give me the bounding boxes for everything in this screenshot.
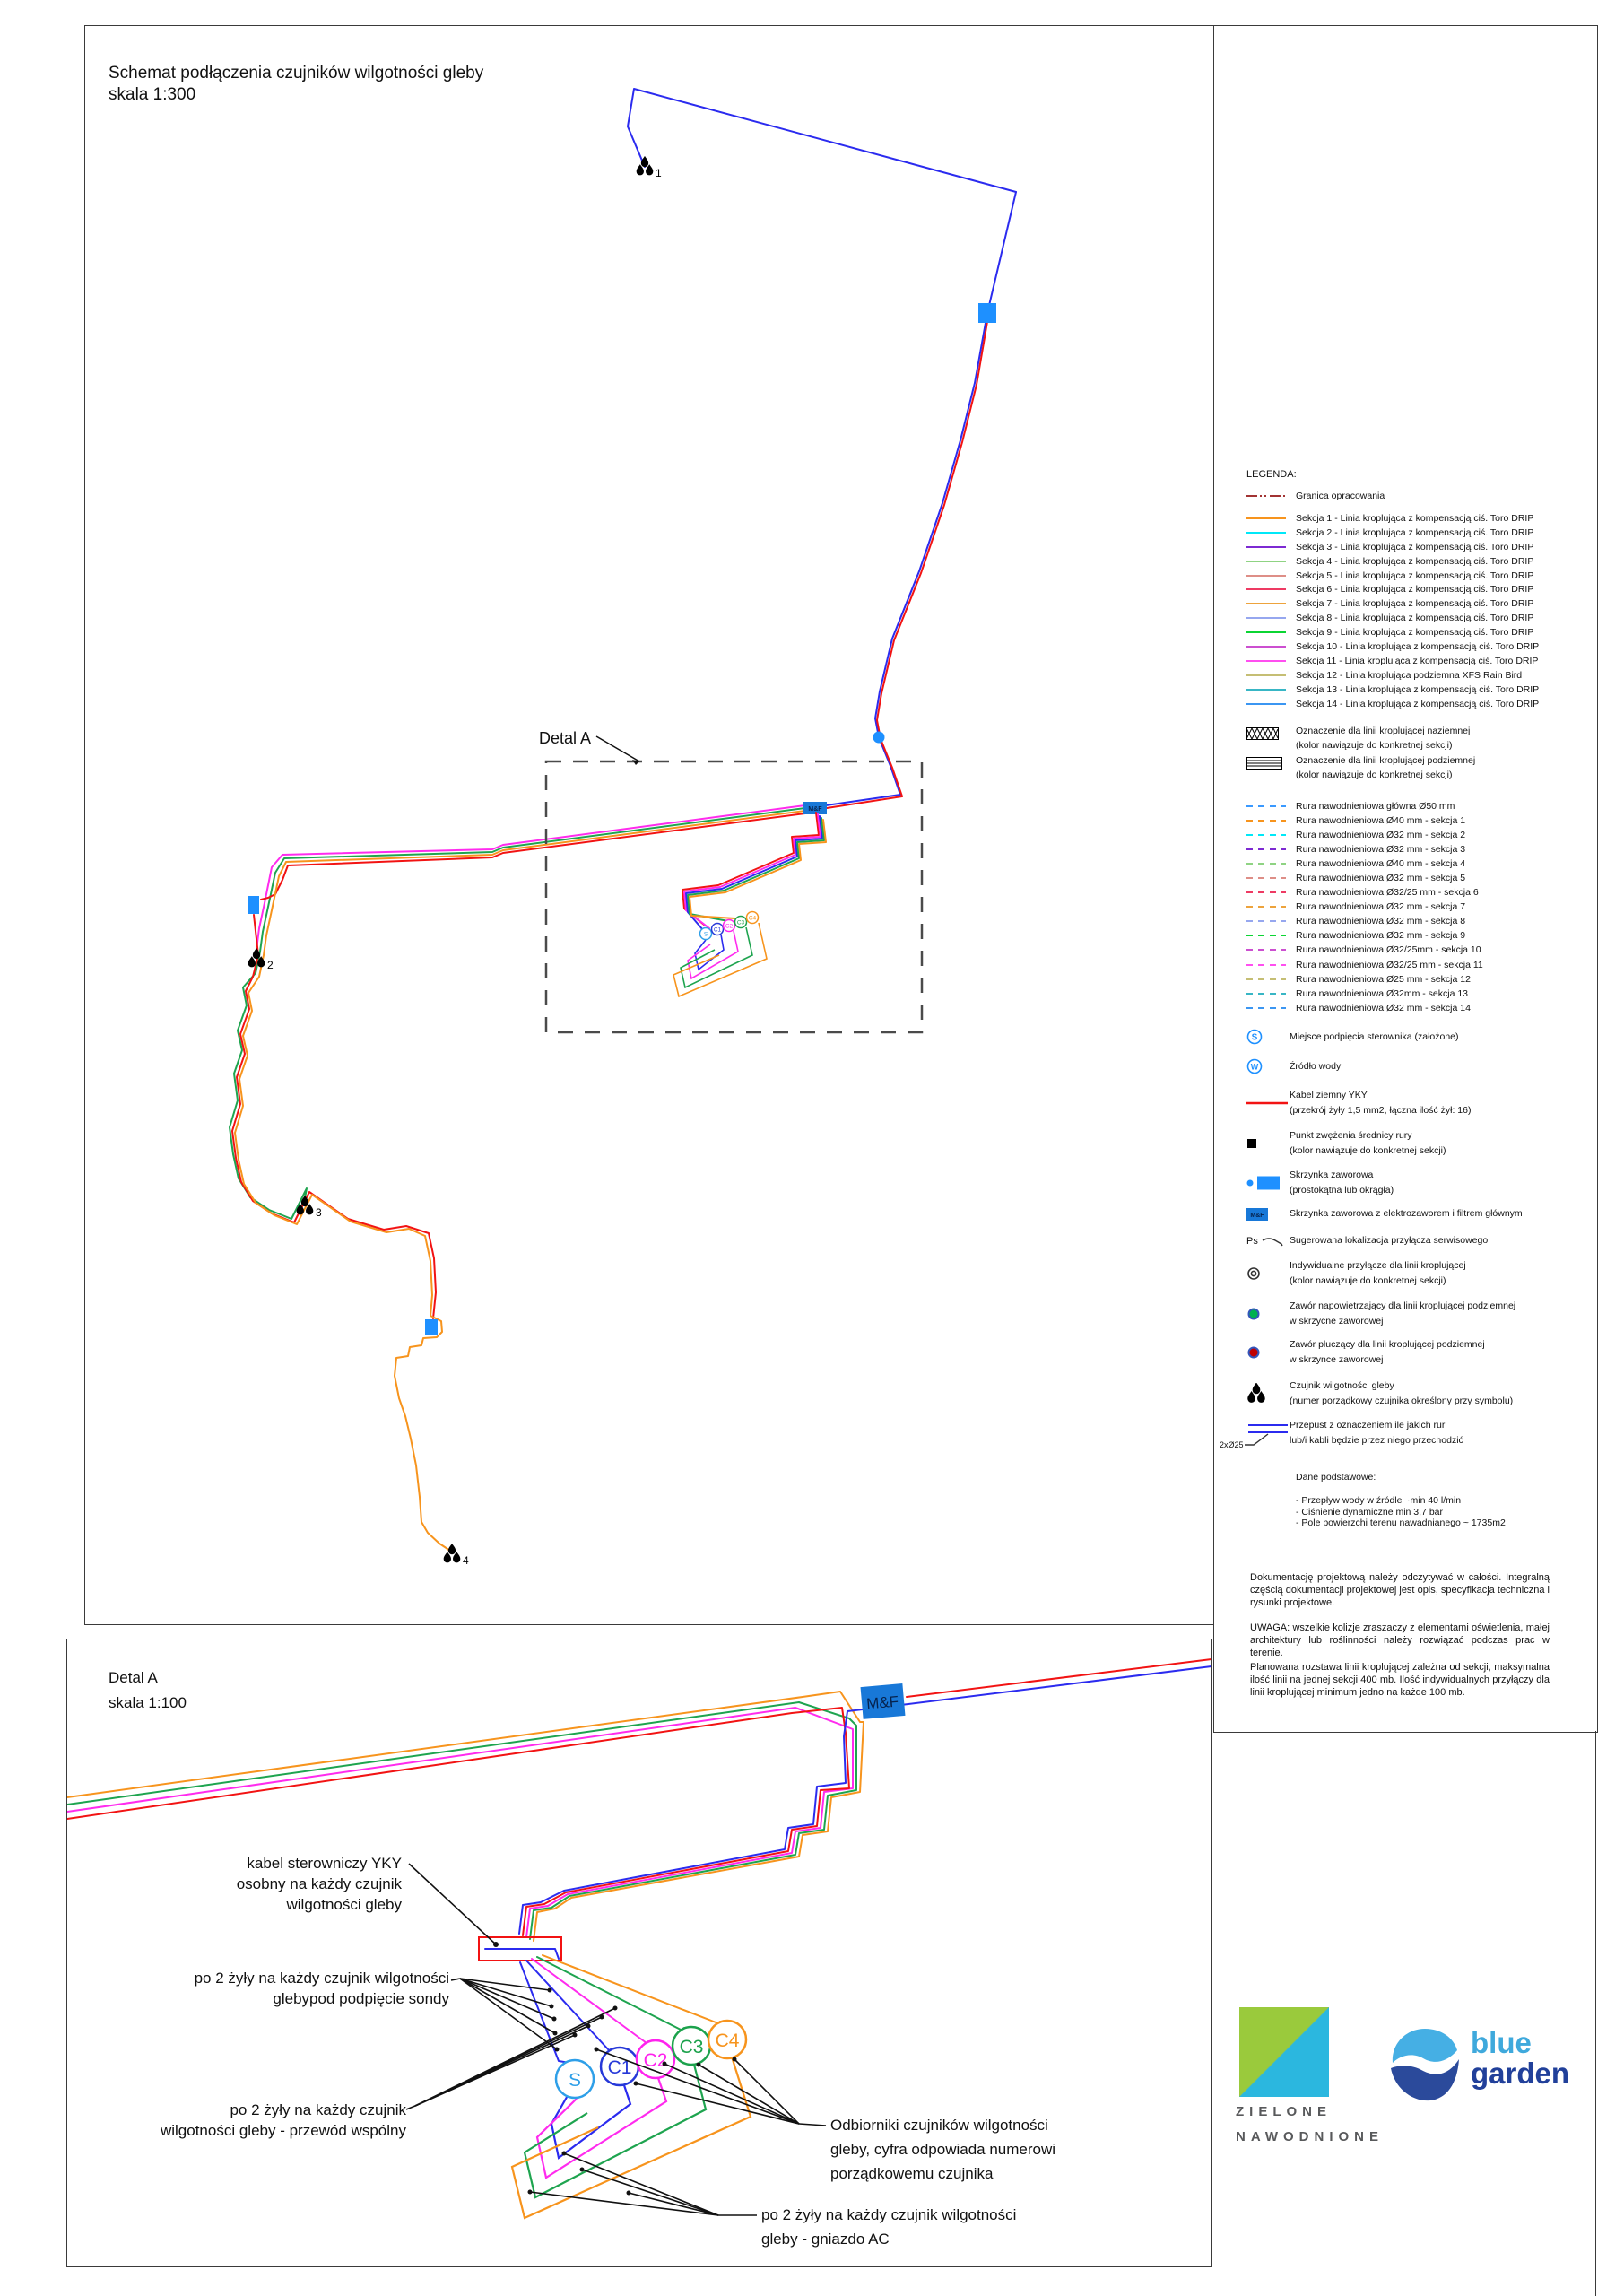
label-odbiorniki-2: gleby, cyfra odpowiada numerowi <box>830 2141 1055 2158</box>
detail-pipe-green <box>67 1702 856 1939</box>
legend-row-zawor-nap: Zawór napowietrzający dla linii kroplują… <box>1246 1299 1593 1329</box>
flush-valve-icon <box>1246 1345 1261 1360</box>
water-source-icon: W <box>1246 1058 1263 1074</box>
annotation-leaders <box>406 1864 826 2215</box>
legend-title: LEGENDA: <box>1246 469 1297 480</box>
legend-row-sterownik: S Miejsce podpięcia sterownika (założone… <box>1246 1029 1593 1045</box>
label-kabel-2: osobny na każdy czujnik <box>237 1875 403 1892</box>
legend-sekcja-row: Sekcja 14 - Linia kroplująca z kompensac… <box>1246 697 1539 711</box>
controller-icon: S <box>1246 1029 1263 1045</box>
legend-sekcja-row: Sekcja 5 - Linia kroplująca z kompensacj… <box>1246 569 1539 583</box>
czujnik-label-2: (numer porządkowy czujnika określony prz… <box>1290 1394 1513 1409</box>
receiver-circles-small: S C1 C2 C3 C4 <box>700 912 759 940</box>
service-connection-icon <box>1262 1236 1285 1247</box>
main-drawing: Schemat podłączenia czujników wilgotnośc… <box>85 26 1214 1624</box>
detail-cable-red-east <box>907 1659 1211 1697</box>
soil-moisture-sensor-icon <box>637 156 654 176</box>
valve-box-2 <box>248 896 259 914</box>
svg-text:M&F: M&F <box>865 1692 899 1712</box>
valve-box-mf-icon: M&F <box>1246 1208 1268 1221</box>
main-scale: skala 1:300 <box>109 85 195 104</box>
legend-sekcje-list: Sekcja 1 - Linia kroplująca z kompensacj… <box>1246 511 1539 710</box>
svg-text:C4: C4 <box>749 916 757 922</box>
legend-rura-row: Rura nawodnieniowa Ø32 mm - sekcja 8 <box>1246 914 1483 928</box>
legend-row-czujnik: Czujnik wilgotności gleby (numer porządk… <box>1246 1378 1593 1409</box>
przylacze-label-1: Indywidualne przyłącze dla linii kropluj… <box>1290 1258 1466 1274</box>
detail-pipe-orange <box>67 1692 864 1941</box>
punkt-label-2: (kolor nawiązuje do konkretnej sekcji) <box>1290 1144 1446 1159</box>
label-sonda-2: glebypod podpięcie sondy <box>273 1990 449 2007</box>
svg-text:S: S <box>1252 1033 1258 1043</box>
legend-rura-row: Rura nawodnieniowa Ø32 mm - sekcja 2 <box>1246 828 1483 842</box>
granica-label: Granica opracowania <box>1296 491 1385 501</box>
dane-item: - Pole powierzchi terenu nawadnianego ~ … <box>1296 1518 1506 1529</box>
sekcja-label: Sekcja 5 - Linia kroplująca z kompensacj… <box>1296 570 1533 581</box>
air-valve-icon <box>1246 1307 1261 1321</box>
zielone-logo-text-1: ZIELONE <box>1236 2104 1332 2119</box>
label-wspolny-2: wilgotności gleby - przewód wspólny <box>160 2122 407 2139</box>
legend-row-skrzynka: Skrzynka zaworowa (prostokątna lub okrąg… <box>1246 1168 1593 1198</box>
sekcja-line-swatch <box>1246 617 1286 619</box>
oznaczenie-2-line1: Oznaczenie dla linii kroplującej podziem… <box>1296 755 1475 766</box>
label-kabel-1: kabel sterowniczy YKY <box>247 1855 402 1872</box>
zielone-nawodnione-logo <box>1239 2007 1329 2097</box>
legend-rura-row: Rura nawodnieniowa Ø32 mm - sekcja 3 <box>1246 842 1483 857</box>
surface-dripline-hatch-icon <box>1246 727 1279 740</box>
label-sonda-1: po 2 żyły na każdy czujnik wilgotności <box>195 1970 449 1987</box>
svg-text:W: W <box>1251 1063 1259 1072</box>
svg-text:S: S <box>569 2070 581 2091</box>
pipe-green <box>230 808 805 1219</box>
punkt-label-1: Punkt zwężenia średnicy rury <box>1290 1128 1446 1144</box>
legend-row-kabel: Kabel ziemny YKY (przekrój żyły 1,5 mm2,… <box>1246 1088 1593 1118</box>
sekcja-line-swatch <box>1246 603 1286 604</box>
legend-sekcja-row: Sekcja 11 - Linia kroplująca z kompensac… <box>1246 654 1539 668</box>
sekcja-line-swatch <box>1246 546 1286 548</box>
rura-label: Rura nawodnieniowa Ø32 mm - sekcja 2 <box>1296 830 1465 840</box>
cable-red-south <box>232 915 436 1318</box>
woda-label: Źródło wody <box>1290 1059 1341 1074</box>
sekcja-label: Sekcja 13 - Linia kroplująca z kompensac… <box>1296 684 1539 695</box>
svg-text:C3: C3 <box>737 920 745 926</box>
rura-label: Rura nawodnieniowa Ø32/25 mm - sekcja 11 <box>1296 960 1483 970</box>
receiver-circles: S C1 C2 C3 C4 <box>556 2021 746 2098</box>
detail-a-drawing: Detal A skala 1:100 M&F <box>67 1639 1211 2266</box>
rura-dash-swatch <box>1246 877 1286 879</box>
note-paragraph-1: Dokumentację projektową należy odczytywa… <box>1250 1571 1550 1609</box>
dane-item: - Ciśnienie dynamiczne min 3,7 bar <box>1296 1507 1506 1518</box>
rura-dash-swatch <box>1246 863 1286 865</box>
legend-rura-row: Rura nawodnieniowa Ø25 mm - sekcja 12 <box>1246 972 1483 987</box>
rura-label: Rura nawodnieniowa Ø32/25mm - sekcja 10 <box>1296 944 1481 955</box>
dane-title: Dane podstawowe: <box>1296 1472 1376 1483</box>
zawor-nap-label-2: w skrzycne zaworowej <box>1290 1314 1515 1329</box>
mf-box-detail: M&F <box>861 1683 906 1719</box>
blue-garden-logo-text-blue: blue <box>1471 2028 1532 2057</box>
legend-rura-row: Rura nawodnieniowa Ø32 mm - sekcja 7 <box>1246 900 1483 914</box>
sensor-number: 3 <box>316 1206 322 1219</box>
main-drawing-frame: Schemat podłączenia czujników wilgotnośc… <box>84 25 1215 1625</box>
ps-label: Ps <box>1246 1236 1258 1247</box>
svg-text:2xØ25: 2xØ25 <box>1220 1440 1244 1448</box>
label-odbiorniki-1: Odbiorniki czujników wilgotności <box>830 2117 1048 2134</box>
legend-panel: LEGENDA: Granica opracowania Sekcja 1 - … <box>1213 25 1598 1733</box>
legend-row-zawor-plucz: Zawór płuczący dla linii kroplującej pod… <box>1246 1337 1593 1368</box>
label-gniazdo-1: po 2 żyły na każdy czujnik wilgotności <box>761 2206 1016 2223</box>
oznaczenie-2-line2: (kolor nawiązuje do konkretnej sekcji) <box>1296 770 1453 780</box>
przylacze-label-2: (kolor nawiązuje do konkretnej sekcji) <box>1290 1274 1466 1289</box>
legend-sekcja-row: Sekcja 3 - Linia kroplująca z kompensacj… <box>1246 540 1539 554</box>
valve-box-3 <box>425 1319 438 1335</box>
svg-text:S: S <box>704 932 708 938</box>
rura-dash-swatch <box>1246 820 1286 822</box>
rura-dash-swatch <box>1246 906 1286 908</box>
sekcja-line-swatch <box>1246 561 1286 562</box>
skrzynka-label-1: Skrzynka zaworowa <box>1290 1168 1394 1183</box>
rura-dash-swatch <box>1246 805 1286 807</box>
legend-sekcja-row: Sekcja 13 - Linia kroplująca z kompensac… <box>1246 683 1539 697</box>
rura-dash-swatch <box>1246 935 1286 936</box>
legend-granica-row: Granica opracowania <box>1246 489 1385 503</box>
round-valve-box <box>873 732 885 744</box>
blue-garden-logo-text-garden: garden <box>1471 2058 1569 2088</box>
legend-rura-row: Rura nawodnieniowa Ø32/25mm - sekcja 10 <box>1246 943 1483 957</box>
pipe-main-blue-2 <box>826 192 1016 805</box>
sekcja-line-swatch <box>1246 703 1286 705</box>
sekcja-line-swatch <box>1246 631 1286 633</box>
mf-box-main-label: M&F <box>808 806 822 813</box>
sekcja-label: Sekcja 14 - Linia kroplująca z kompensac… <box>1296 699 1539 709</box>
detail-pipe-magenta <box>67 1708 853 1937</box>
legend-sekcja-row: Sekcja 8 - Linia kroplująca z kompensacj… <box>1246 611 1539 625</box>
legend-sekcja-row: Sekcja 10 - Linia kroplująca z kompensac… <box>1246 639 1539 654</box>
skrzynka-mf-label: Skrzynka zaworowa z elektrozaworem i fil… <box>1290 1206 1523 1222</box>
sekcja-label: Sekcja 10 - Linia kroplująca z kompensac… <box>1296 641 1539 652</box>
rura-dash-swatch <box>1246 949 1286 951</box>
label-wspolny-1: po 2 żyły na każdy czujnik <box>230 2101 406 2118</box>
legend-rura-row: Rura nawodnieniowa Ø32 mm - sekcja 14 <box>1246 1001 1483 1015</box>
zawor-plucz-label-1: Zawór płuczący dla linii kroplującej pod… <box>1290 1337 1485 1352</box>
sterownik-label: Miejsce podpięcia sterownika (założone) <box>1290 1030 1459 1045</box>
sekcja-label: Sekcja 3 - Linia kroplująca z kompensacj… <box>1296 542 1533 552</box>
rura-label: Rura nawodnieniowa Ø32 mm - sekcja 5 <box>1296 873 1465 883</box>
rura-dash-swatch <box>1246 964 1286 966</box>
legend-rura-row: Rura nawodnieniowa Ø40 mm - sekcja 1 <box>1246 813 1483 828</box>
rura-dash-swatch <box>1246 1007 1286 1009</box>
legend-sekcja-row: Sekcja 9 - Linia kroplująca z kompensacj… <box>1246 625 1539 639</box>
underground-dripline-lines-icon <box>1246 757 1282 770</box>
legend-rury-list: Rura nawodnieniowa główna Ø50 mm Rura na… <box>1246 799 1483 1015</box>
detail-cable-red <box>67 1708 849 1935</box>
label-odbiorniki-3: porządkowemu czujnika <box>830 2165 994 2182</box>
rura-dash-swatch <box>1246 993 1286 995</box>
rura-label: Rura nawodnieniowa główna Ø50 mm <box>1296 801 1455 812</box>
detail-a-leader <box>596 736 639 761</box>
dane-item: - Przepływ wody w źródle ~min 40 l/min <box>1296 1495 1506 1507</box>
przepust-label-1: Przepust z oznaczeniem ile jakich rur <box>1290 1418 1463 1433</box>
sensor-number: 1 <box>656 167 662 179</box>
rura-label: Rura nawodnieniowa Ø32/25 mm - sekcja 6 <box>1296 887 1479 898</box>
legend-row-woda: W Źródło wody <box>1246 1058 1593 1074</box>
sekcja-line-swatch <box>1246 646 1286 648</box>
sekcja-label: Sekcja 7 - Linia kroplująca z kompensacj… <box>1296 598 1533 609</box>
legend-row-skrzynka-mf: M&F Skrzynka zaworowa z elektrozaworem i… <box>1246 1206 1593 1222</box>
rura-dash-swatch <box>1246 834 1286 836</box>
sekcja-label: Sekcja 2 - Linia kroplująca z kompensacj… <box>1296 527 1533 538</box>
rura-label: Rura nawodnieniowa Ø32 mm - sekcja 3 <box>1296 844 1465 855</box>
svg-text:C3: C3 <box>680 2037 704 2057</box>
svg-text:C4: C4 <box>716 2031 740 2051</box>
label-gniazdo-2: gleby - gniazdo AC <box>761 2231 890 2248</box>
legend-sekcja-row: Sekcja 12 - Linia kroplująca podziemna X… <box>1246 668 1539 683</box>
rura-dash-swatch <box>1246 891 1286 893</box>
legend-sekcja-row: Sekcja 6 - Linia kroplująca z kompensacj… <box>1246 582 1539 596</box>
legend-row-ps: Ps Sugerowana lokalizacja przyłącza serw… <box>1246 1233 1593 1248</box>
note-paragraph-3: Planowana rozstawa linii kroplującej zal… <box>1250 1661 1550 1699</box>
detail-title: Detal A <box>109 1669 158 1686</box>
cable-yky-red <box>827 311 989 808</box>
sheet-right-border <box>1595 1731 1596 2296</box>
culvert-icon: 2xØ25 <box>1218 1418 1288 1448</box>
sekcja-line-swatch <box>1246 674 1286 676</box>
legend-rura-row: Rura nawodnieniowa Ø32mm - sekcja 13 <box>1246 987 1483 1001</box>
kabel-label-2: (przekrój żyły 1,5 mm2, łączna ilość żył… <box>1290 1103 1471 1118</box>
czujnik-label-1: Czujnik wilgotności gleby <box>1290 1378 1513 1394</box>
sensor-number: 4 <box>463 1554 469 1567</box>
pipe-orange <box>235 811 805 1551</box>
blue-garden-logo-icon <box>1385 2023 1464 2106</box>
valve-box-icon <box>1246 1176 1282 1190</box>
sekcja-line-swatch <box>1246 532 1286 534</box>
legend-row-przylacze: Indywidualne przyłącze dla linii kropluj… <box>1246 1258 1593 1289</box>
plan-sheet: Schemat podłączenia czujników wilgotnośc… <box>0 0 1624 2296</box>
sekcja-label: Sekcja 11 - Linia kroplująca z kompensac… <box>1296 656 1538 666</box>
valve-box-1 <box>978 303 996 323</box>
svg-text:M&F: M&F <box>1250 1213 1264 1219</box>
legend-sekcja-row: Sekcja 7 - Linia kroplująca z kompensacj… <box>1246 596 1539 611</box>
rura-dash-swatch <box>1246 848 1286 850</box>
soil-moisture-sensor-icon <box>444 1544 461 1563</box>
legend-rura-row: Rura nawodnieniowa Ø32 mm - sekcja 9 <box>1246 928 1483 943</box>
rura-label: Rura nawodnieniowa Ø32 mm - sekcja 14 <box>1296 1003 1471 1013</box>
zielone-logo-text-2: NAWODNIONE <box>1236 2129 1384 2144</box>
sekcja-line-swatch <box>1246 689 1286 691</box>
sekcja-label: Sekcja 4 - Linia kroplująca z kompensacj… <box>1296 556 1533 567</box>
ps-row-label: Sugerowana lokalizacja przyłącza serwiso… <box>1290 1233 1488 1248</box>
individual-connection-icon <box>1246 1266 1261 1281</box>
legend-rura-row: Rura nawodnieniowa główna Ø50 mm <box>1246 799 1483 813</box>
sekcja-line-swatch <box>1246 660 1286 662</box>
rura-label: Rura nawodnieniowa Ø32 mm - sekcja 7 <box>1296 901 1465 912</box>
przepust-label-2: lub/i kabli będzie przez niego przechodz… <box>1290 1433 1463 1448</box>
ground-cable-icon <box>1246 1101 1288 1105</box>
sekcja-line-swatch <box>1246 517 1286 519</box>
detail-scale: skala 1:100 <box>109 1694 187 1711</box>
legend-rura-row: Rura nawodnieniowa Ø32 mm - sekcja 5 <box>1246 871 1483 885</box>
rura-label: Rura nawodnieniowa Ø32mm - sekcja 13 <box>1296 988 1468 999</box>
legend-rura-row: Rura nawodnieniowa Ø32/25 mm - sekcja 6 <box>1246 885 1483 900</box>
legend-row-przepust: 2xØ25 Przepust z oznaczeniem ile jakich … <box>1218 1418 1564 1448</box>
svg-text:C2: C2 <box>725 924 734 930</box>
rura-dash-swatch <box>1246 978 1286 980</box>
rura-dash-swatch <box>1246 920 1286 922</box>
sekcja-label: Sekcja 6 - Linia kroplująca z kompensacj… <box>1296 584 1533 595</box>
svg-text:C1: C1 <box>714 927 722 934</box>
detail-a-callout-label: Detal A <box>539 729 591 747</box>
soil-moisture-sensor-icon <box>1246 1383 1266 1405</box>
granica-swatch <box>1246 495 1286 497</box>
skrzynka-label-2: (prostokątna lub okrągła) <box>1290 1183 1394 1198</box>
legend-rura-row: Rura nawodnieniowa Ø40 mm - sekcja 4 <box>1246 857 1483 871</box>
legend-row-punkt: Punkt zwężenia średnicy rury (kolor nawi… <box>1246 1128 1593 1159</box>
label-kabel-3: wilgotności gleby <box>285 1896 402 1913</box>
legend-sekcja-row: Sekcja 2 - Linia kroplująca z kompensacj… <box>1246 526 1539 540</box>
main-title: Schemat podłączenia czujników wilgotnośc… <box>109 64 484 83</box>
sekcja-line-swatch <box>1246 575 1286 577</box>
kabel-label-1: Kabel ziemny YKY <box>1290 1088 1471 1103</box>
note-paragraph-2: UWAGA: wszelkie kolizje zraszaczy z elem… <box>1250 1622 1550 1659</box>
sekcja-line-swatch <box>1246 588 1286 590</box>
oznaczenie-1-line1: Oznaczenie dla linii kroplującej naziemn… <box>1296 726 1470 736</box>
rura-label: Rura nawodnieniowa Ø32 mm - sekcja 9 <box>1296 930 1465 941</box>
legend-sekcja-row: Sekcja 4 - Linia kroplująca z kompensacj… <box>1246 554 1539 569</box>
sekcja-label: Sekcja 8 - Linia kroplująca z kompensacj… <box>1296 613 1533 623</box>
rura-label: Rura nawodnieniowa Ø25 mm - sekcja 12 <box>1296 974 1471 985</box>
oznaczenie-1-line2: (kolor nawiązuje do konkretnej sekcji) <box>1296 740 1453 751</box>
rura-label: Rura nawodnieniowa Ø32 mm - sekcja 8 <box>1296 916 1465 926</box>
sekcja-label: Sekcja 1 - Linia kroplująca z kompensacj… <box>1296 513 1533 524</box>
pipe-narrowing-icon <box>1246 1138 1257 1149</box>
rura-label: Rura nawodnieniowa Ø40 mm - sekcja 1 <box>1296 815 1465 826</box>
zawor-nap-label-1: Zawór napowietrzający dla linii kroplują… <box>1290 1299 1515 1314</box>
legend-rura-row: Rura nawodnieniowa Ø32/25 mm - sekcja 11 <box>1246 958 1483 972</box>
zawor-plucz-label-2: w skrzynce zaworowej <box>1290 1352 1485 1368</box>
sensor-number: 2 <box>267 959 274 971</box>
rura-label: Rura nawodnieniowa Ø40 mm - sekcja 4 <box>1296 858 1465 869</box>
detail-a-frame: Detal A skala 1:100 M&F <box>66 1639 1212 2267</box>
pipe-main-blue <box>628 89 1016 192</box>
legend-sekcja-row: Sekcja 1 - Linia kroplująca z kompensacj… <box>1246 511 1539 526</box>
dane-list: - Przepływ wody w źródle ~min 40 l/min- … <box>1296 1495 1506 1529</box>
sekcja-label: Sekcja 12 - Linia kroplująca podziemna X… <box>1296 670 1522 681</box>
sekcja-label: Sekcja 9 - Linia kroplująca z kompensacj… <box>1296 627 1533 638</box>
